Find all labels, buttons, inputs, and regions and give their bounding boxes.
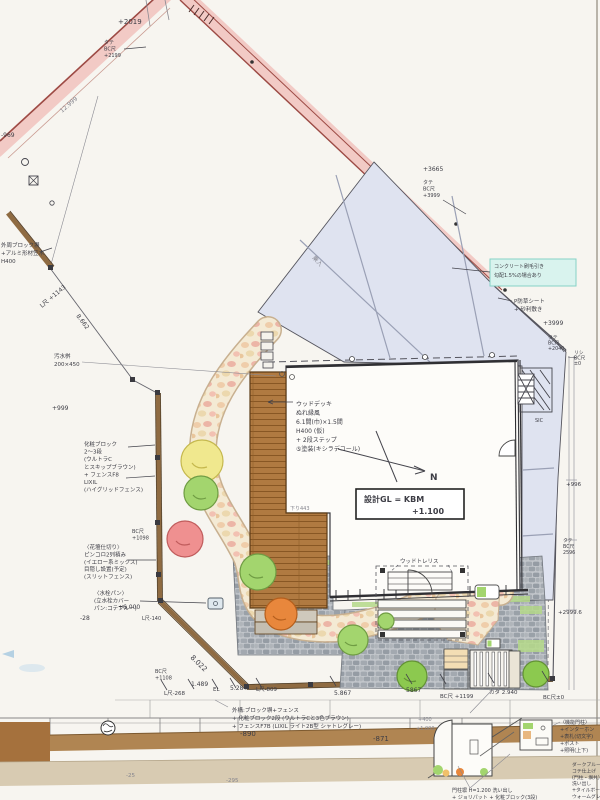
level-minus871: -871: [373, 735, 389, 743]
function-pillar: [486, 639, 500, 648]
tree-red: [167, 521, 203, 557]
tree-green-1: [184, 476, 218, 510]
svg-text:ウッドトレリス: ウッドトレリス: [400, 557, 439, 565]
water-tap-pan: [208, 598, 223, 609]
level-plus999: +999: [52, 405, 69, 412]
shrub-green-small: [378, 613, 394, 629]
dim-5867b: 5867: [406, 687, 421, 694]
dim-el: EL: [213, 687, 220, 693]
dim-kata2940: カタ 2.940: [489, 688, 518, 696]
dim-lr268: L尺-268: [164, 690, 186, 697]
level-plus6000: +6.000: [118, 604, 140, 611]
level-minus969: -969: [1, 132, 15, 139]
step-down-label: 下り443: [290, 506, 310, 512]
north-label: N: [430, 473, 438, 483]
dim-5284: 5.284: [230, 685, 247, 692]
level-plus2999: +2999.6: [558, 610, 582, 616]
site-plan-drawing: N 設計GL = KBM +1.100 +2019 タテBC尺+2199 12.…: [0, 0, 600, 800]
tree-green-2: [240, 554, 276, 590]
shrub-green-entrance: [523, 661, 549, 687]
gate-pillar-right: [509, 651, 520, 688]
entrance-gate: [470, 650, 512, 688]
storage-box: [444, 649, 468, 669]
level-plus400: +400: [418, 717, 432, 723]
level-plus996: +996: [566, 482, 582, 488]
tap-cover-unit: [475, 585, 499, 599]
dim-5867a: 5.867: [334, 690, 351, 697]
dim-1489: 1.489: [191, 681, 208, 688]
function-pillar-elevation: [520, 720, 552, 750]
sic-label: SIC: [535, 418, 544, 424]
finish-note: ダークブルーコテ仕上げ(門柱・塀共)洗い出し+タイルボーダーウォームグレー: [572, 761, 600, 800]
level-plus2019: +2019: [118, 18, 142, 26]
tree-green-3: [338, 625, 368, 655]
level-plus3999: +3999: [543, 320, 563, 327]
level-minus28: -28: [80, 615, 90, 622]
svg-text:+1.100: +1.100: [412, 507, 444, 516]
level-minus890: -890: [240, 730, 256, 738]
gate-pillar-left: [444, 670, 468, 689]
level-minus295: -295: [226, 778, 239, 784]
svg-text:設計GL = KBM: 設計GL = KBM: [364, 494, 424, 504]
level-plus3665: +3665: [423, 166, 443, 173]
design-gl-box: 設計GL = KBM +1.100: [356, 489, 464, 519]
benchmark-symbol: [101, 721, 115, 735]
level-lr140: L尺-140: [142, 616, 161, 622]
dim-lr809: L尺-809: [256, 686, 278, 693]
site-plan-sheet: N 設計GL = KBM +1.100 +2019 タテBC尺+2199 12.…: [0, 0, 600, 800]
level-minus25: -25: [126, 773, 135, 779]
dim-bcr1199: BC尺 +1199: [440, 693, 474, 700]
tree-orange: [265, 598, 297, 630]
level-plus1000: +1.000: [416, 726, 435, 732]
stairs: [518, 374, 534, 404]
road-block-left: [0, 722, 50, 762]
